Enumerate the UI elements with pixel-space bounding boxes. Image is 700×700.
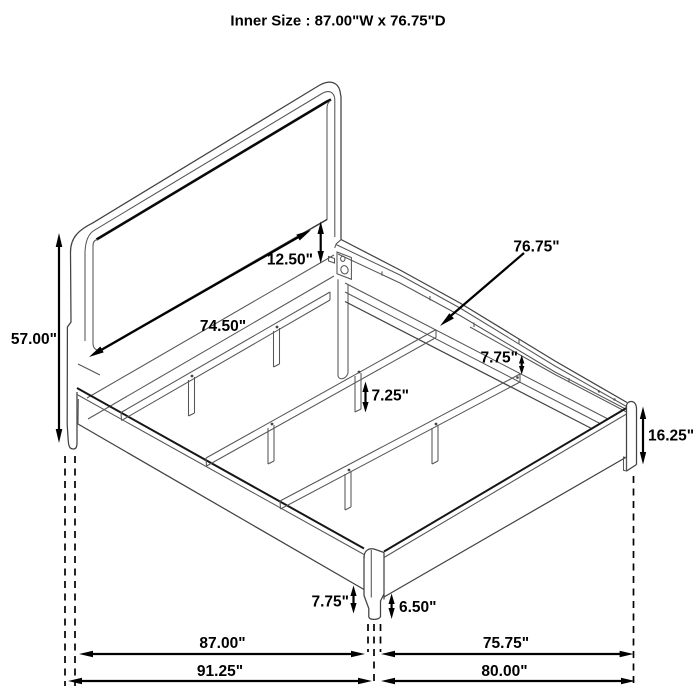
svg-text:12.50": 12.50" <box>267 252 313 269</box>
svg-text:76.75": 76.75" <box>513 239 559 256</box>
svg-text:91.25": 91.25" <box>197 663 243 680</box>
svg-text:87.00": 87.00" <box>199 635 245 652</box>
svg-text:6.50": 6.50" <box>399 599 437 616</box>
svg-text:16.25": 16.25" <box>648 428 694 445</box>
svg-text:75.75": 75.75" <box>483 635 529 652</box>
svg-text:7.75": 7.75" <box>480 350 518 367</box>
svg-text:80.00": 80.00" <box>481 663 527 680</box>
svg-text:57.00": 57.00" <box>11 331 57 348</box>
svg-text:7.75": 7.75" <box>311 594 349 611</box>
svg-text:Inner Size : 87.00"W x 76.75"D: Inner Size : 87.00"W x 76.75"D <box>230 13 445 30</box>
svg-text:74.50": 74.50" <box>200 318 246 335</box>
svg-text:7.25": 7.25" <box>372 388 410 405</box>
